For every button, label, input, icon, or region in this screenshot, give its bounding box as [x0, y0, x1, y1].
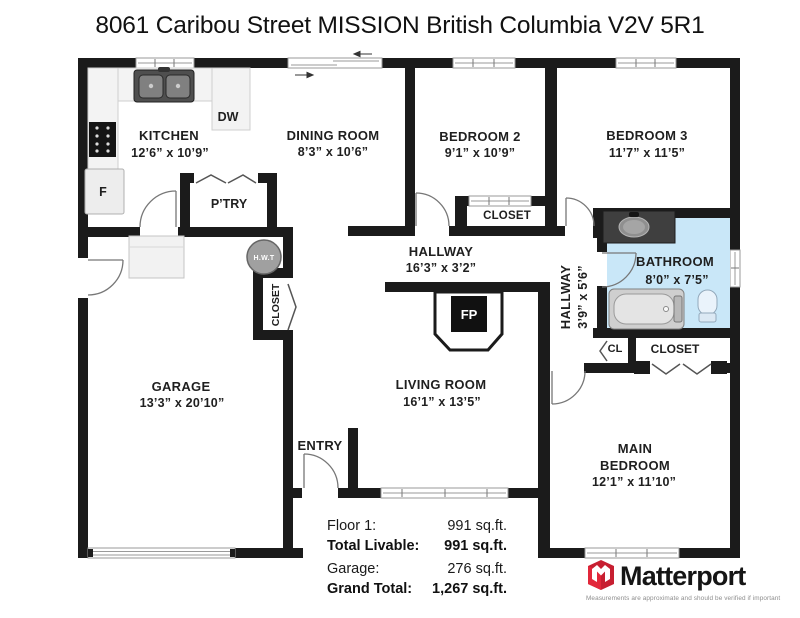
door-bedroom3	[566, 198, 594, 226]
summary-livable-label: Total Livable:	[327, 538, 419, 554]
page-title: 8061 Caribou Street MISSION British Colu…	[95, 12, 704, 39]
dining-room-label: DINING ROOM	[287, 128, 380, 143]
bedroom3-dims: 11’7” x 11’5”	[609, 146, 685, 160]
window-kitchen	[136, 58, 194, 68]
door-bedroom2	[416, 193, 449, 226]
summary-garage-label: Garage:	[327, 561, 379, 577]
hallway-dims: 16’3” x 3’2”	[406, 261, 477, 275]
bifold-pantry-2	[228, 175, 256, 183]
window-bedroom3	[616, 58, 676, 68]
bifold-main-closet-2	[683, 364, 711, 374]
living-room-label: LIVING ROOM	[396, 377, 487, 392]
bathroom	[603, 211, 730, 329]
wall-exterior-left	[78, 58, 88, 558]
wall-pantry-stub-left	[180, 173, 194, 183]
fireplace-label: FP	[461, 307, 478, 322]
wall-garage-closet-left	[253, 268, 263, 340]
laundry-appliance-icon	[129, 236, 184, 278]
wall-bedroom3-door-stub	[557, 226, 565, 236]
wall-entry-post	[348, 428, 358, 490]
bedroom2-dims: 9’1” x 10’9”	[445, 146, 516, 160]
bifold-pantry-1	[196, 175, 226, 183]
summary-grand-label: Grand Total:	[327, 581, 412, 597]
wall-pantry-stub-right	[258, 173, 277, 183]
main-bedroom-label-2: BEDROOM	[600, 458, 670, 473]
window-mainbedroom	[585, 548, 679, 558]
hallway-small-dims: 3’9” x 5’6”	[576, 265, 590, 328]
hallway-small-label: HALLWAY	[558, 265, 573, 329]
vanity-sink-icon	[603, 211, 675, 243]
garage-vehicle-door	[88, 548, 235, 558]
wall-dining-bedroom2	[405, 58, 415, 236]
summary-floor1-label: Floor 1:	[327, 518, 376, 534]
bathtub-icon	[609, 289, 684, 329]
wall-cl-divider	[628, 338, 636, 365]
stove-icon	[89, 122, 116, 157]
wall-exterior-right	[730, 58, 740, 558]
wall-closet-stub-right	[531, 196, 545, 206]
wall-living-hallway	[538, 282, 550, 373]
bedroom2-label: BEDROOM 2	[439, 129, 520, 144]
fireplace: FP	[435, 292, 502, 350]
pantry-label: P’TRY	[211, 197, 248, 211]
window-bathroom	[730, 250, 740, 287]
summary-livable-value: 991 sq.ft.	[444, 538, 507, 554]
closet-main-label: CLOSET	[651, 342, 700, 356]
main-bedroom-dims: 12’1” x 11’10”	[592, 475, 676, 489]
garage-dims: 13’3” x 20’10”	[140, 396, 225, 410]
matterport-tagline: Measurements are approximate and should …	[586, 595, 780, 602]
wall-garage-right-lower	[283, 330, 293, 548]
bifold-cl	[600, 341, 607, 361]
window-livingroom	[381, 488, 508, 498]
matterport-logo-icon	[588, 560, 614, 590]
wall-garage-closet-bottom	[253, 330, 293, 340]
wall-closet-stub-left	[455, 196, 469, 206]
cl-label: CL	[608, 343, 623, 355]
summary-garage-value: 276 sq.ft.	[447, 561, 507, 577]
hallway-label: HALLWAY	[409, 244, 473, 259]
kitchen-dims: 12’6” x 10’9”	[131, 146, 209, 160]
bedroom3-label: BEDROOM 3	[606, 128, 687, 143]
window-bedroom2	[453, 58, 515, 68]
wall-mainbedroom-left	[538, 373, 550, 548]
floorplan-svg: 8061 Caribou Street MISSION British Colu…	[0, 0, 800, 618]
kitchen-label: KITCHEN	[139, 128, 199, 143]
floorplan-page: 8061 Caribou Street MISSION British Colu…	[0, 0, 800, 618]
fridge-label: F	[99, 185, 107, 199]
wall-bedroom2-bedroom3	[545, 58, 557, 236]
kitchen-sink-icon	[134, 67, 194, 102]
bifold-main-closet-1	[652, 364, 680, 374]
door-entry	[304, 454, 338, 488]
closet-bedroom2-label: CLOSET	[483, 210, 531, 222]
door-main-bedroom	[552, 371, 585, 404]
area-summary: Floor 1: 991 sq.ft. Total Livable: 991 s…	[327, 518, 507, 597]
dishwasher-label: DW	[218, 110, 239, 124]
fridge-icon: F	[85, 169, 124, 214]
garage-label: GARAGE	[152, 379, 211, 394]
hot-water-tank-icon: H.W.T	[247, 240, 281, 274]
closet-slider-bedroom2	[469, 196, 531, 206]
hwt-label: H.W.T	[254, 255, 275, 262]
wall-closet-post-left	[634, 361, 650, 374]
dining-room-dims: 8’3” x 10’6”	[298, 145, 369, 159]
door-garage-side	[88, 260, 123, 295]
bifold-garage-closet	[288, 284, 296, 330]
summary-grand-value: 1,267 sq.ft.	[432, 581, 507, 597]
window-dining-slider	[288, 58, 382, 68]
matterport-wordmark: Matterport	[620, 561, 746, 591]
gap-garage-side-door	[78, 258, 88, 298]
wall-closet-stub	[724, 363, 740, 373]
bathroom-label: BATHROOM	[636, 254, 714, 269]
wall-hallway-top-left	[348, 226, 412, 236]
door-kitchen-garage	[140, 191, 176, 227]
main-bedroom-label-1: MAIN	[618, 441, 652, 456]
matterport-branding: Matterport Measurements are approximate …	[586, 560, 780, 602]
gap-entry-door	[302, 488, 338, 498]
toilet-icon	[698, 290, 717, 322]
summary-floor1-value: 991 sq.ft.	[447, 518, 507, 534]
entry-label: ENTRY	[297, 438, 342, 453]
closet-garage-label: CLOSET	[270, 283, 282, 326]
living-room-dims: 16’1” x 13’5”	[403, 395, 481, 409]
bathroom-dims: 8’0” x 7’5”	[645, 273, 708, 287]
door-gaps	[78, 227, 338, 498]
